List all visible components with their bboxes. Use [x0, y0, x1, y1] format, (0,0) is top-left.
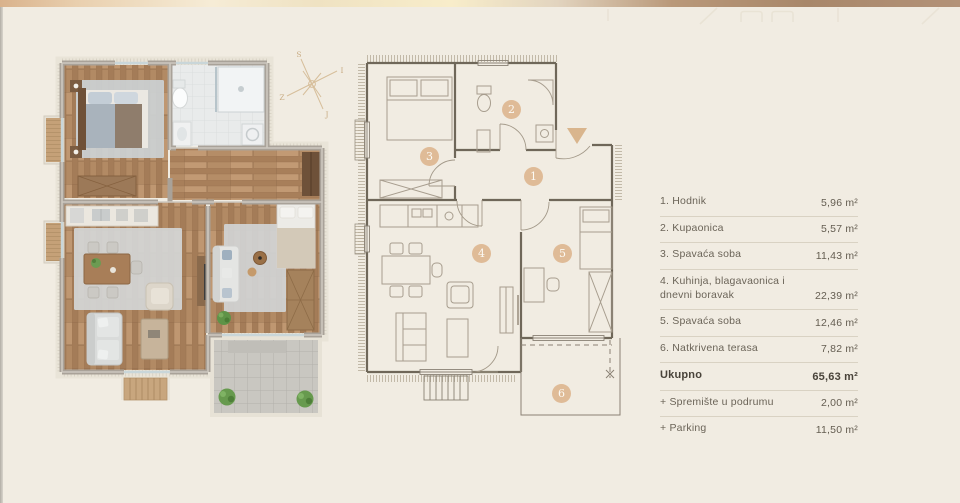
room-list-row: 1. Hodnik 5,96 m² [660, 190, 858, 217]
room-label: 5. Spavaća soba [660, 315, 741, 329]
floorplan-schematic [352, 50, 644, 422]
total-label: Ukupno [660, 368, 702, 382]
room-list-extra-row: + Parking 11,50 m² [660, 417, 858, 443]
entrance-arrow [567, 128, 587, 144]
room-number-badge: 6 [552, 384, 571, 403]
room-label: 6. Natkrivena terasa [660, 342, 758, 356]
extra-area: 2,00 m² [821, 397, 858, 409]
left-edge-strip [0, 7, 3, 503]
room-label: 2. Kupaonica [660, 222, 724, 236]
room-area: 11,43 m² [816, 250, 858, 262]
room-number-badge: 2 [502, 100, 521, 119]
extra-label: + Spremište u podrumu [660, 396, 774, 410]
room-number-badge: 4 [472, 244, 491, 263]
floorplan-page: S I J Z [0, 0, 960, 503]
room-list-row: 5. Spavaća soba 12,46 m² [660, 310, 858, 337]
room-list-row: 4. Kuhinja, blagavaonica i dnevni borava… [660, 270, 858, 310]
room-list-row: 6. Natkrivena terasa 7,82 m² [660, 337, 858, 364]
room-list-total-row: Ukupno 65,63 m² [660, 363, 858, 390]
room-label: 4. Kuhinja, blagavaonica i dnevni borava… [660, 275, 792, 302]
room-label: 3. Spavaća soba [660, 248, 741, 262]
room-area: 22,39 m² [815, 290, 858, 302]
room-label: 1. Hodnik [660, 195, 706, 209]
room-list-extra-row: + Spremište u podrumu 2,00 m² [660, 391, 858, 418]
total-area: 65,63 m² [812, 371, 858, 383]
room-area: 5,57 m² [821, 223, 858, 235]
room-list: 1. Hodnik 5,96 m² 2. Kupaonica 5,57 m² 3… [660, 190, 858, 443]
compass-rose: S I J Z [278, 48, 348, 120]
entry-steps [121, 378, 170, 400]
room-list-row: 2. Kupaonica 5,57 m² [660, 217, 858, 244]
room-number-badge: 5 [553, 244, 572, 263]
compass-e-label: I [341, 66, 344, 75]
room-list-row: 3. Spavaća soba 11,43 m² [660, 243, 858, 270]
top-gradient-bar [0, 0, 960, 7]
extra-label: + Parking [660, 422, 706, 436]
room-area: 12,46 m² [815, 317, 858, 329]
compass-s-label: J [324, 110, 328, 119]
extra-area: 11,50 m² [816, 424, 858, 436]
bedroom3-furniture [70, 80, 148, 196]
room-number-badge: 1 [524, 167, 543, 186]
room-area: 5,96 m² [821, 197, 858, 209]
room-number-badge: 3 [420, 147, 439, 166]
compass-w-label: Z [279, 93, 284, 102]
room-area: 7,82 m² [821, 343, 858, 355]
compass-n-label: S [296, 50, 301, 59]
